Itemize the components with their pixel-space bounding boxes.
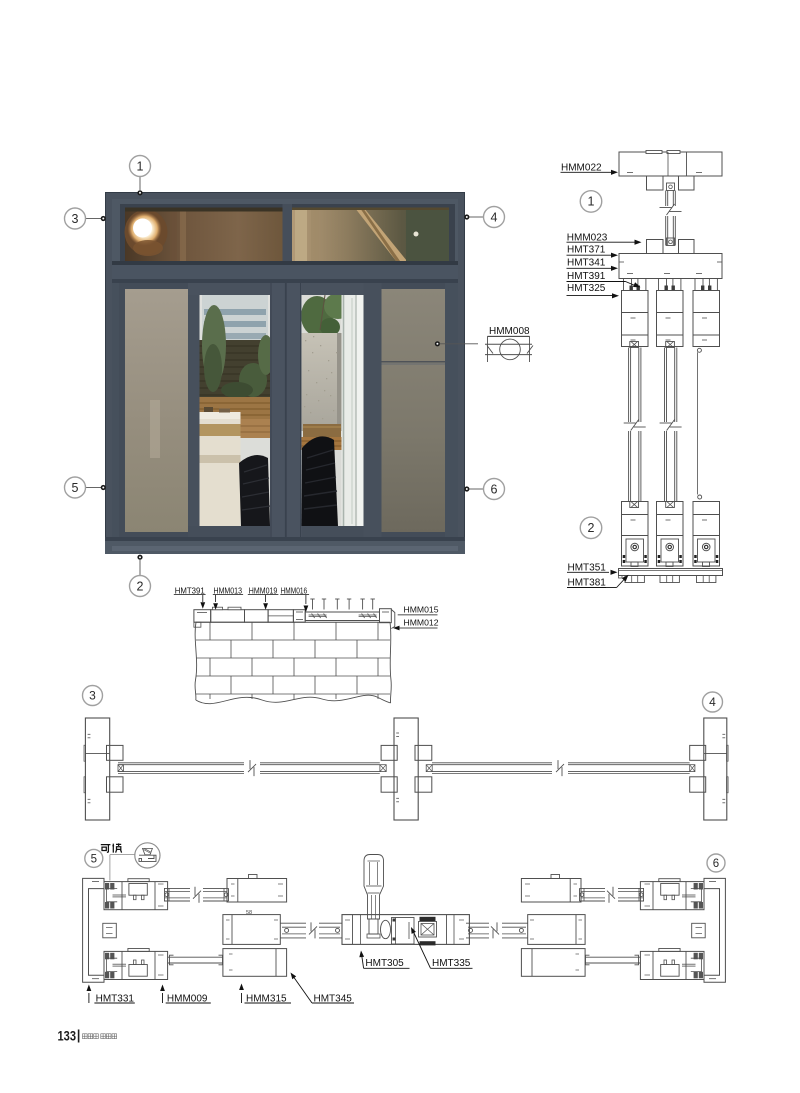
svg-text:5: 5 xyxy=(91,853,97,865)
svg-text:HMM008: HMM008 xyxy=(489,326,530,337)
svg-text:HMM022: HMM022 xyxy=(561,162,602,173)
svg-text:6: 6 xyxy=(713,858,719,870)
svg-text:4: 4 xyxy=(709,695,716,709)
svg-text:HMT371: HMT371 xyxy=(567,245,606,256)
svg-text:HMT391: HMT391 xyxy=(175,586,206,595)
svg-text:5: 5 xyxy=(72,481,79,495)
svg-text:1: 1 xyxy=(137,159,144,173)
svg-text:2: 2 xyxy=(137,579,144,593)
svg-text:1: 1 xyxy=(588,195,595,209)
svg-text:4: 4 xyxy=(491,210,498,224)
svg-text:HMT381: HMT381 xyxy=(568,578,607,589)
svg-text:2: 2 xyxy=(588,521,595,535)
svg-text:3: 3 xyxy=(89,689,96,703)
svg-text:HMM019: HMM019 xyxy=(249,586,278,595)
svg-text:58: 58 xyxy=(246,910,252,916)
svg-text:133: 133 xyxy=(58,1029,77,1044)
svg-text:HMT335: HMT335 xyxy=(432,958,471,969)
svg-text:HMT391: HMT391 xyxy=(567,271,606,282)
svg-text:HMM013: HMM013 xyxy=(214,586,243,595)
svg-text:HMT341: HMT341 xyxy=(567,258,606,269)
svg-text:3: 3 xyxy=(72,212,79,226)
svg-text:HMM016: HMM016 xyxy=(281,586,308,595)
svg-text:6: 6 xyxy=(491,482,498,496)
svg-text:HMM015: HMM015 xyxy=(404,605,440,614)
svg-text:HMT305: HMT305 xyxy=(365,958,404,969)
svg-text:HMT351: HMT351 xyxy=(568,562,607,573)
svg-text:HMM012: HMM012 xyxy=(404,618,440,627)
svg-text:HMT325: HMT325 xyxy=(567,283,606,294)
